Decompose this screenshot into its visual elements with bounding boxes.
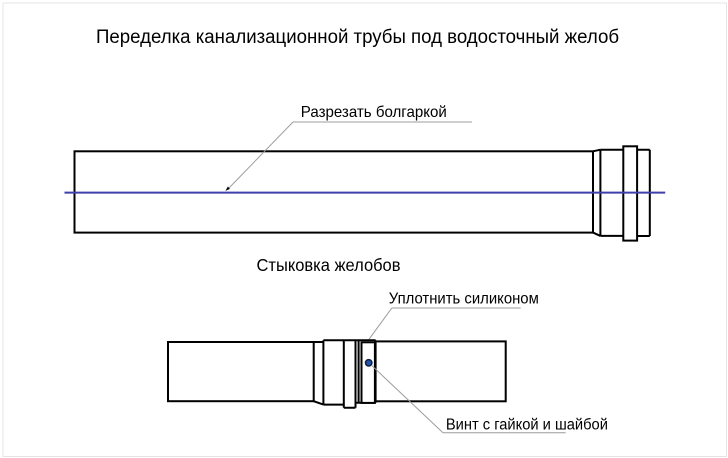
svg-text:Переделка канализационной труб: Переделка канализационной трубы под водо… bbox=[96, 27, 619, 48]
svg-text:Уплотнить силиконом: Уплотнить силиконом bbox=[389, 290, 539, 307]
svg-text:Разрезать болгаркой: Разрезать болгаркой bbox=[301, 104, 447, 121]
svg-text:Стыковка желобов: Стыковка желобов bbox=[257, 255, 401, 275]
svg-text:Винт с гайкой и шайбой: Винт с гайкой и шайбой bbox=[446, 416, 608, 433]
